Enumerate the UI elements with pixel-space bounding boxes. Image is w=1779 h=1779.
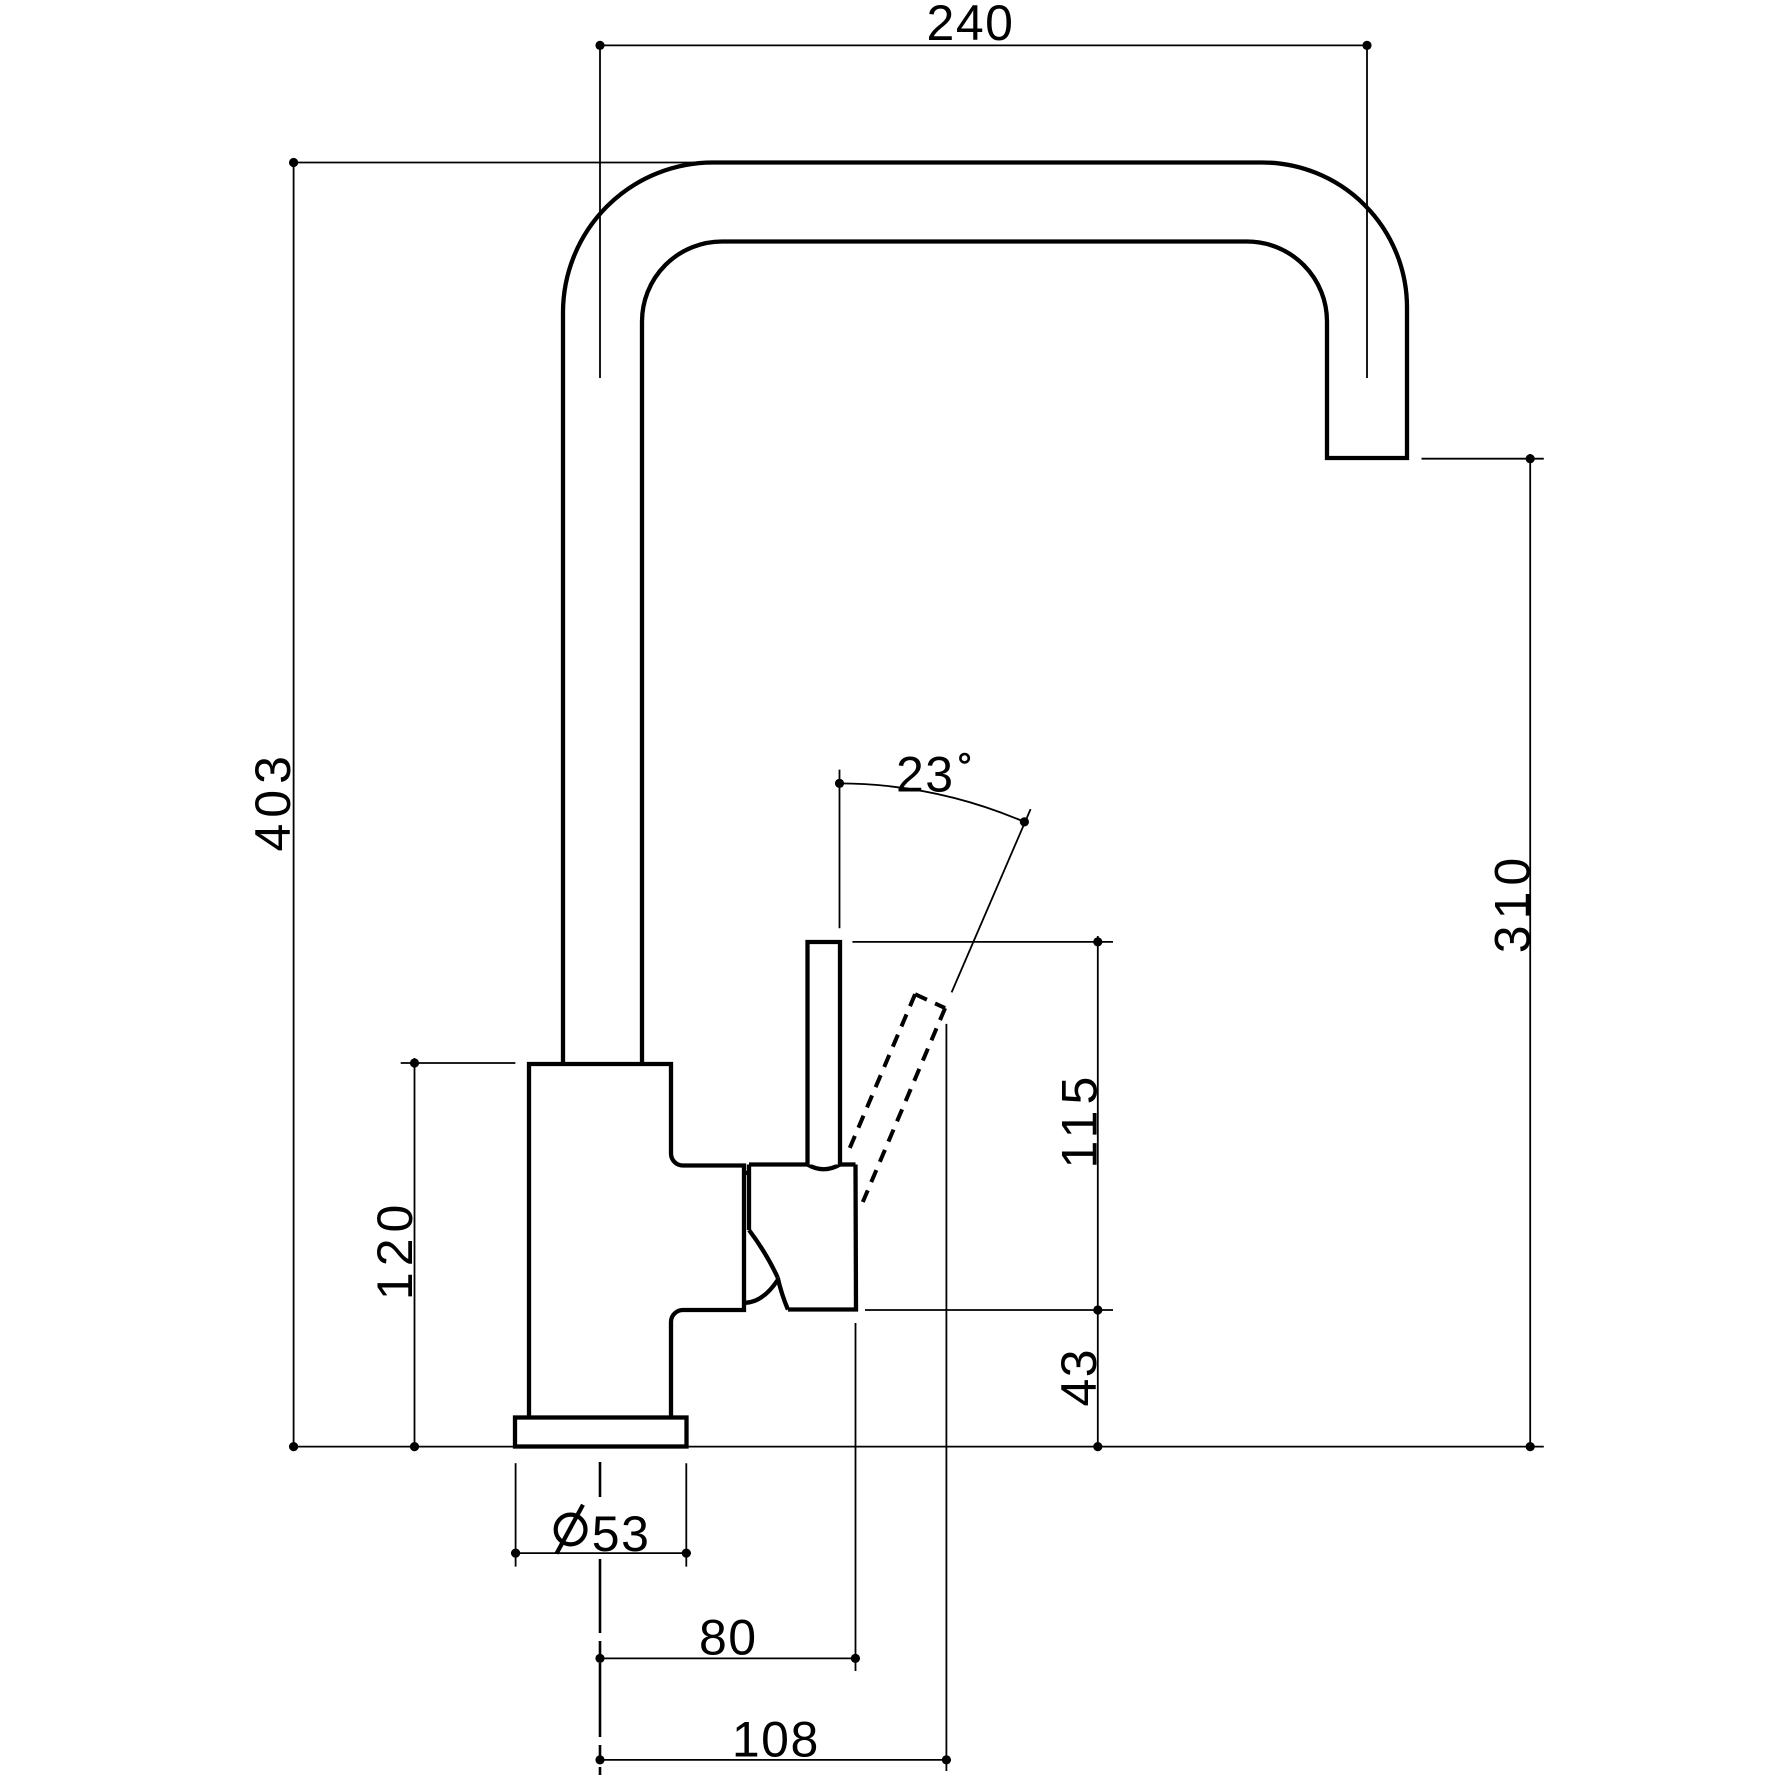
svg-text:120: 120 — [367, 1199, 423, 1300]
svg-text:43: 43 — [1051, 1348, 1107, 1407]
svg-text:310: 310 — [1484, 852, 1540, 953]
svg-text:240: 240 — [927, 0, 1015, 51]
svg-text:80: 80 — [699, 1610, 758, 1666]
svg-text:108: 108 — [732, 1711, 820, 1767]
svg-text:115: 115 — [1052, 1071, 1108, 1169]
svg-text:403: 403 — [245, 750, 301, 851]
svg-text:23: 23 — [896, 746, 955, 802]
svg-text:53: 53 — [592, 1506, 651, 1562]
